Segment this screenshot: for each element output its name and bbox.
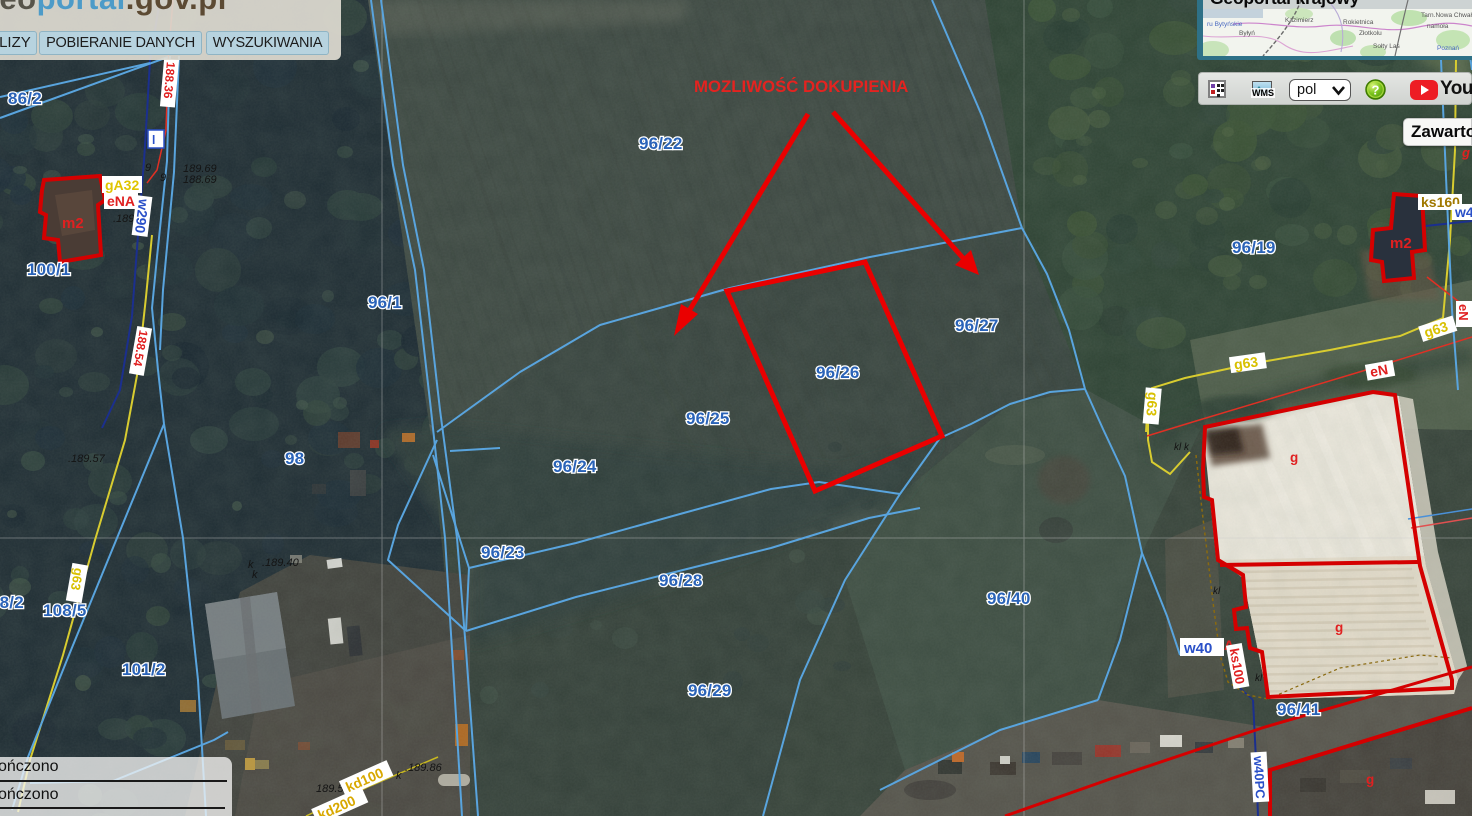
svg-text:86/2: 86/2: [8, 89, 42, 108]
svg-text:96/28: 96/28: [659, 571, 703, 590]
svg-text:96/25: 96/25: [686, 409, 730, 428]
svg-text:namoła: namoła: [1427, 23, 1449, 30]
svg-text:96/26: 96/26: [816, 363, 860, 382]
svg-text:108/5: 108/5: [43, 601, 87, 620]
svg-text:w40PC: w40PC: [1251, 755, 1268, 800]
svg-text:MOZLIWOŚĆ DOKUPIENIA: MOZLIWOŚĆ DOKUPIENIA: [694, 77, 908, 96]
svg-text:kl: kl: [1255, 673, 1263, 684]
svg-text:98: 98: [285, 449, 304, 468]
svg-text:kl k: kl k: [1174, 442, 1190, 453]
svg-text:Poznań: Poznań: [1437, 45, 1459, 52]
svg-text:96/22: 96/22: [639, 134, 683, 153]
svg-text:Złotkolu: Złotkolu: [1359, 30, 1382, 37]
svg-text:l: l: [152, 133, 155, 147]
svg-text:96/19: 96/19: [1232, 238, 1276, 257]
svg-text:eN: eN: [1456, 304, 1471, 321]
svg-text:Byłyń: Byłyń: [1239, 30, 1255, 37]
svg-text:gA32: gA32: [105, 177, 139, 193]
svg-text:g63: g63: [1233, 353, 1259, 372]
svg-text:w4: w4: [1454, 204, 1472, 220]
svg-text:k: k: [252, 569, 258, 581]
svg-text:9: 9: [160, 172, 166, 184]
svg-text:96/29: 96/29: [688, 681, 732, 700]
svg-text:m2: m2: [62, 215, 84, 232]
svg-text:.189.57: .189.57: [68, 453, 106, 465]
svg-text:101/2: 101/2: [122, 660, 166, 679]
svg-text:.189.40: .189.40: [262, 557, 300, 569]
svg-text:96/23: 96/23: [481, 543, 525, 562]
svg-text:9: 9: [145, 162, 151, 174]
svg-text:96/27: 96/27: [955, 316, 999, 335]
svg-text:ru Bytyńskie: ru Bytyńskie: [1207, 21, 1243, 28]
svg-text:188.69: 188.69: [183, 174, 217, 186]
svg-text:k: k: [396, 770, 402, 782]
svg-text:g: g: [1461, 145, 1470, 160]
svg-text:100/1: 100/1: [27, 260, 71, 279]
svg-text:Tarn.Nowa Chwała: Tarn.Nowa Chwała: [1421, 12, 1472, 19]
svg-text:96/41: 96/41: [1277, 700, 1321, 719]
svg-text:w40: w40: [1183, 640, 1212, 657]
svg-text:96/24: 96/24: [553, 457, 597, 476]
svg-text:m2: m2: [1390, 235, 1412, 252]
svg-text:.189.86: .189.86: [405, 762, 443, 774]
svg-text:96/1: 96/1: [368, 293, 402, 312]
svg-text:96/40: 96/40: [987, 589, 1031, 608]
svg-text:kl: kl: [1213, 586, 1221, 597]
svg-text:eN: eN: [1369, 361, 1389, 380]
svg-text:Kazimierz: Kazimierz: [1285, 17, 1314, 24]
svg-text:08/2: 08/2: [0, 593, 24, 612]
svg-text:g: g: [1366, 772, 1374, 787]
svg-text:g63: g63: [1143, 391, 1161, 417]
svg-text:g: g: [1290, 450, 1298, 465]
svg-text:g: g: [1335, 620, 1343, 635]
svg-text:eNA: eNA: [107, 193, 135, 209]
svg-text:Sołty Las: Sołty Las: [1373, 43, 1400, 50]
svg-text:Rokietnica: Rokietnica: [1343, 19, 1374, 26]
svg-text:?: ?: [1372, 83, 1380, 98]
